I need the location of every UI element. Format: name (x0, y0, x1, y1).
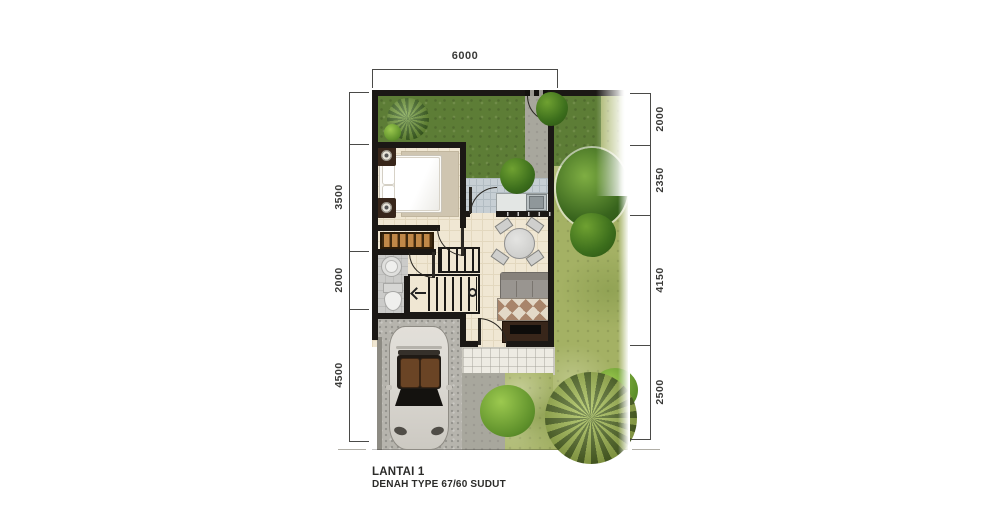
wall-bathroom-right (404, 276, 410, 313)
table-lamp-icon (381, 150, 392, 161)
wall-left (372, 90, 378, 340)
dim-label-top: 6000 (452, 50, 478, 62)
stairs-arrow-stem (415, 292, 426, 294)
dim-right-tick (630, 93, 650, 94)
sofa-cushion-line (516, 281, 517, 297)
wardrobe (380, 232, 434, 249)
car-seat (420, 358, 440, 388)
wall-bedroom-bottom (372, 225, 440, 231)
dim-top-tick (557, 69, 558, 88)
dim-right-tick (630, 145, 650, 146)
dim-label-right: 2500 (654, 379, 666, 404)
dim-left-tick (349, 144, 369, 145)
car-mirror (386, 385, 392, 390)
dim-left-tick (349, 92, 369, 93)
dim-top-line (372, 69, 558, 70)
terrace (462, 347, 555, 375)
kitchen-appliance-marks (498, 212, 552, 216)
car-windshield (395, 389, 443, 406)
wall-right (548, 96, 554, 347)
wall-front-west (462, 341, 478, 347)
dim-label-right: 2000 (654, 106, 666, 131)
shrub-back-garden (480, 385, 535, 437)
living-rug (497, 298, 551, 321)
dim-right-tick (630, 345, 650, 346)
table-lamp-icon (381, 202, 392, 213)
wall-front-east (506, 341, 554, 347)
car-cabin (397, 355, 441, 389)
bathroom-door-leaf (432, 252, 435, 278)
shrub-front-yard (384, 124, 401, 141)
dim-label-left: 2000 (333, 267, 345, 292)
dim-label-left: 3500 (333, 184, 345, 209)
dim-right-line (650, 93, 651, 440)
dim-right-tick (630, 439, 650, 440)
bed-duvet (394, 157, 440, 211)
wash-basin-bowl (385, 260, 398, 273)
tv-screen (510, 325, 541, 334)
garden-fade (618, 90, 630, 465)
front-door-leaf (478, 318, 481, 345)
car-headlight (393, 425, 408, 436)
car-headlight (430, 425, 445, 436)
stairs-newel-icon (468, 288, 477, 297)
wall-carport-top (372, 313, 466, 319)
car-trunk-line (396, 346, 442, 349)
car-mirror (446, 385, 452, 390)
dim-left-tick (349, 251, 369, 252)
dim-label-right: 2350 (654, 167, 666, 192)
plan-subtitle: DENAH TYPE 67/60 SUDUT (372, 479, 506, 490)
car-seat (400, 358, 420, 388)
boundary-mark (338, 449, 366, 450)
car (389, 326, 449, 450)
dim-left-tick (349, 309, 369, 310)
plan-title: LANTAI 1 (372, 466, 425, 478)
dim-left-tick (349, 441, 369, 442)
dim-label-right: 4150 (654, 267, 666, 292)
boundary-mark (632, 449, 660, 450)
sofa-cushion-line (532, 281, 533, 297)
dim-right-tick (630, 215, 650, 216)
wall-bedroom-top (372, 142, 466, 148)
wall-top-west (372, 90, 525, 96)
sofa-back (501, 273, 548, 280)
dim-label-left: 4500 (333, 362, 345, 387)
carport-edge (377, 337, 382, 450)
bedroom-door-leaf (461, 228, 464, 256)
kitchen-sink-basin (529, 196, 544, 209)
patio-door-leaf (469, 187, 472, 213)
floor-plan-canvas: 6000 3500 2000 4500 2000 2350 4150 2500 … (0, 0, 1000, 512)
dim-top-tick (372, 69, 373, 88)
